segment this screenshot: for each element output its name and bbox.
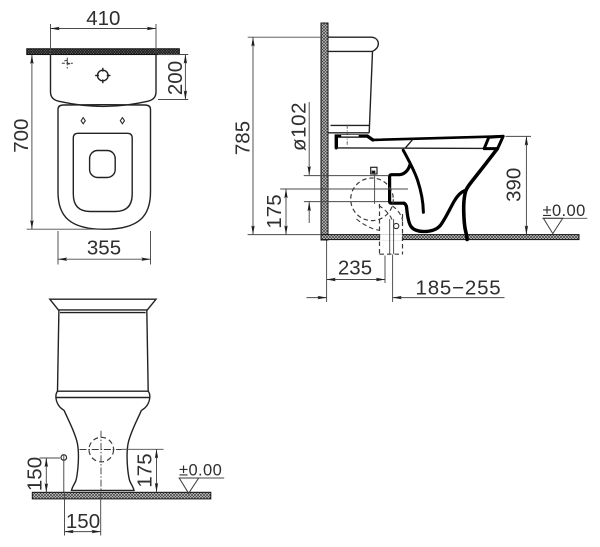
svg-text:±0.00: ±0.00: [179, 462, 222, 480]
svg-text:235: 235: [338, 257, 372, 280]
svg-text:185−255: 185−255: [416, 276, 502, 299]
svg-text:150: 150: [24, 457, 47, 491]
svg-text:ø102: ø102: [287, 102, 310, 151]
svg-text:785: 785: [232, 121, 255, 155]
svg-text:410: 410: [86, 7, 120, 30]
svg-text:200: 200: [164, 61, 187, 95]
svg-text:700: 700: [10, 119, 33, 153]
svg-text:150: 150: [66, 510, 100, 533]
svg-text:±0.00: ±0.00: [543, 202, 586, 220]
svg-text:355: 355: [87, 236, 121, 259]
svg-text:175: 175: [134, 453, 157, 487]
svg-text:175: 175: [263, 194, 286, 228]
svg-text:390: 390: [502, 168, 525, 202]
